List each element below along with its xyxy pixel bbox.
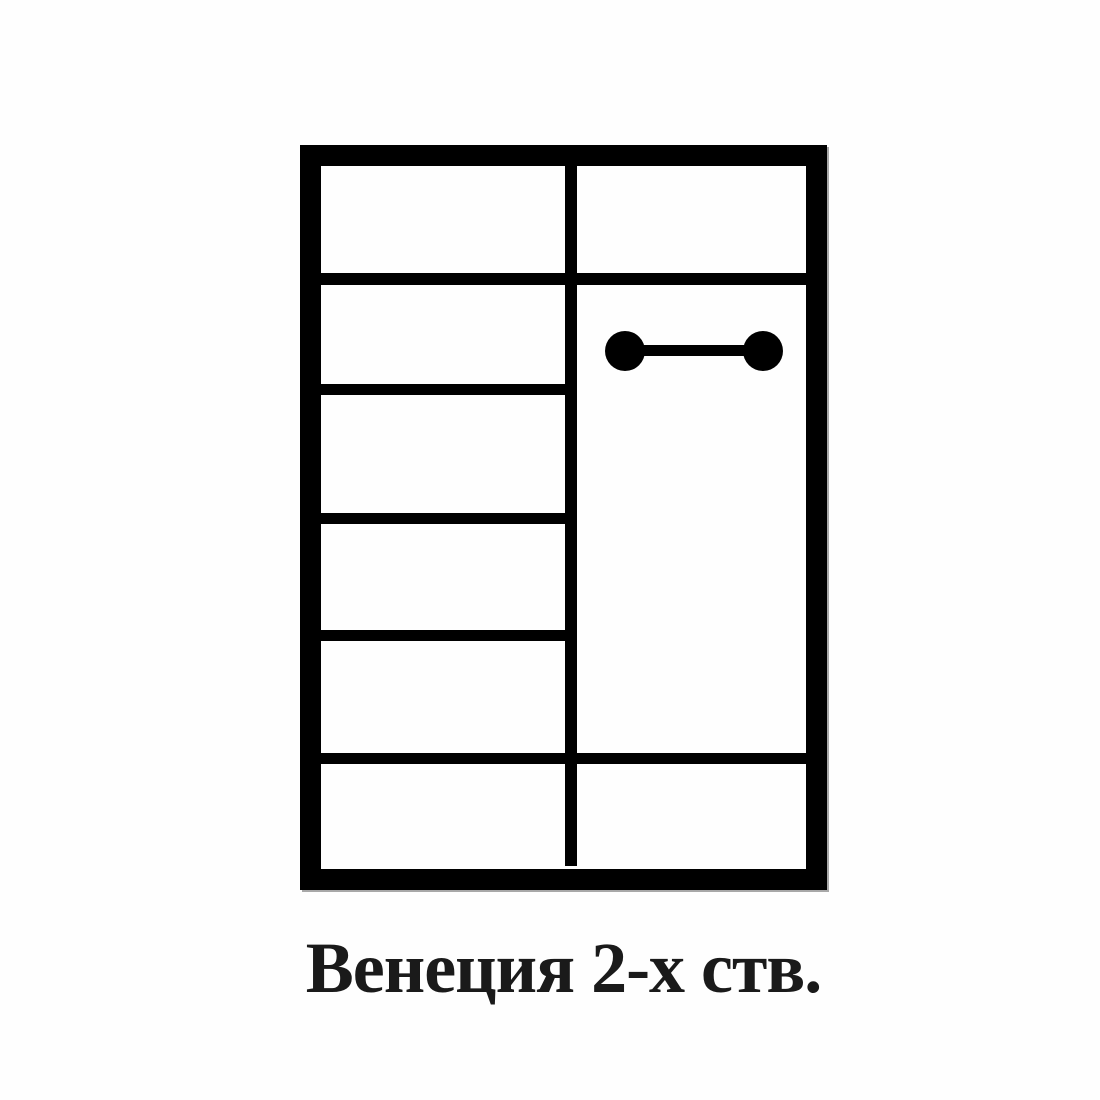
hanging-rod-icon xyxy=(321,166,806,869)
rod-end-left xyxy=(605,331,645,371)
wardrobe-frame xyxy=(300,145,827,890)
rod-end-right xyxy=(743,331,783,371)
wardrobe-diagram: Венеция 2-х ств. xyxy=(0,0,1100,1100)
diagram-caption: Венеция 2-х ств. xyxy=(300,932,827,1004)
